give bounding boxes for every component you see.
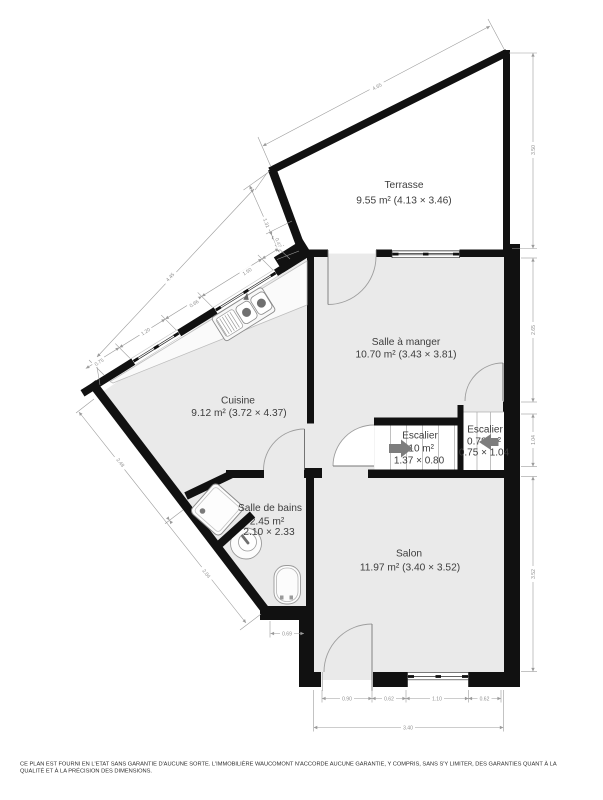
svg-text:1.37 × 0.80: 1.37 × 0.80 xyxy=(394,456,445,467)
svg-text:Salon: Salon xyxy=(396,549,422,560)
svg-text:Salle à manger: Salle à manger xyxy=(372,337,441,348)
svg-text:3.52: 3.52 xyxy=(531,569,537,579)
svg-text:CE PLAN EST FOURNI EN L'ETAT S: CE PLAN EST FOURNI EN L'ETAT SANS GARANT… xyxy=(20,761,557,768)
svg-text:Terrasse: Terrasse xyxy=(384,180,423,191)
svg-text:0.90: 0.90 xyxy=(342,696,352,702)
svg-text:1.04: 1.04 xyxy=(531,435,537,445)
svg-text:9.12 m² (3.72 × 4.37): 9.12 m² (3.72 × 4.37) xyxy=(191,408,286,419)
svg-text:Escalier: Escalier xyxy=(467,425,503,436)
svg-text:1.10: 1.10 xyxy=(432,696,442,702)
svg-text:0.75 × 1.04: 0.75 × 1.04 xyxy=(459,448,510,459)
svg-text:2.10 × 2.33: 2.10 × 2.33 xyxy=(243,527,295,538)
svg-text:Salle de bains: Salle de bains xyxy=(238,503,302,514)
svg-text:0.62: 0.62 xyxy=(480,696,490,702)
svg-text:Escalier: Escalier xyxy=(402,431,438,442)
svg-text:10.70 m² (3.43 × 3.81): 10.70 m² (3.43 × 3.81) xyxy=(355,350,456,361)
svg-text:0.62: 0.62 xyxy=(384,696,394,702)
svg-text:3.50: 3.50 xyxy=(531,145,537,155)
svg-text:9.55 m² (4.13 × 3.46): 9.55 m² (4.13 × 3.46) xyxy=(356,196,451,207)
svg-text:3.40: 3.40 xyxy=(403,725,413,731)
svg-text:2.65: 2.65 xyxy=(531,325,537,335)
svg-text:QUALITÉ ET À LA PRÉCISION DES: QUALITÉ ET À LA PRÉCISION DES DIMENSIONS… xyxy=(20,767,152,774)
svg-text:Cuisine: Cuisine xyxy=(221,396,255,407)
svg-text:2.45 m²: 2.45 m² xyxy=(250,517,285,528)
svg-text:11.97 m² (3.40 × 3.52): 11.97 m² (3.40 × 3.52) xyxy=(360,563,460,574)
svg-text:0.69: 0.69 xyxy=(282,631,292,637)
